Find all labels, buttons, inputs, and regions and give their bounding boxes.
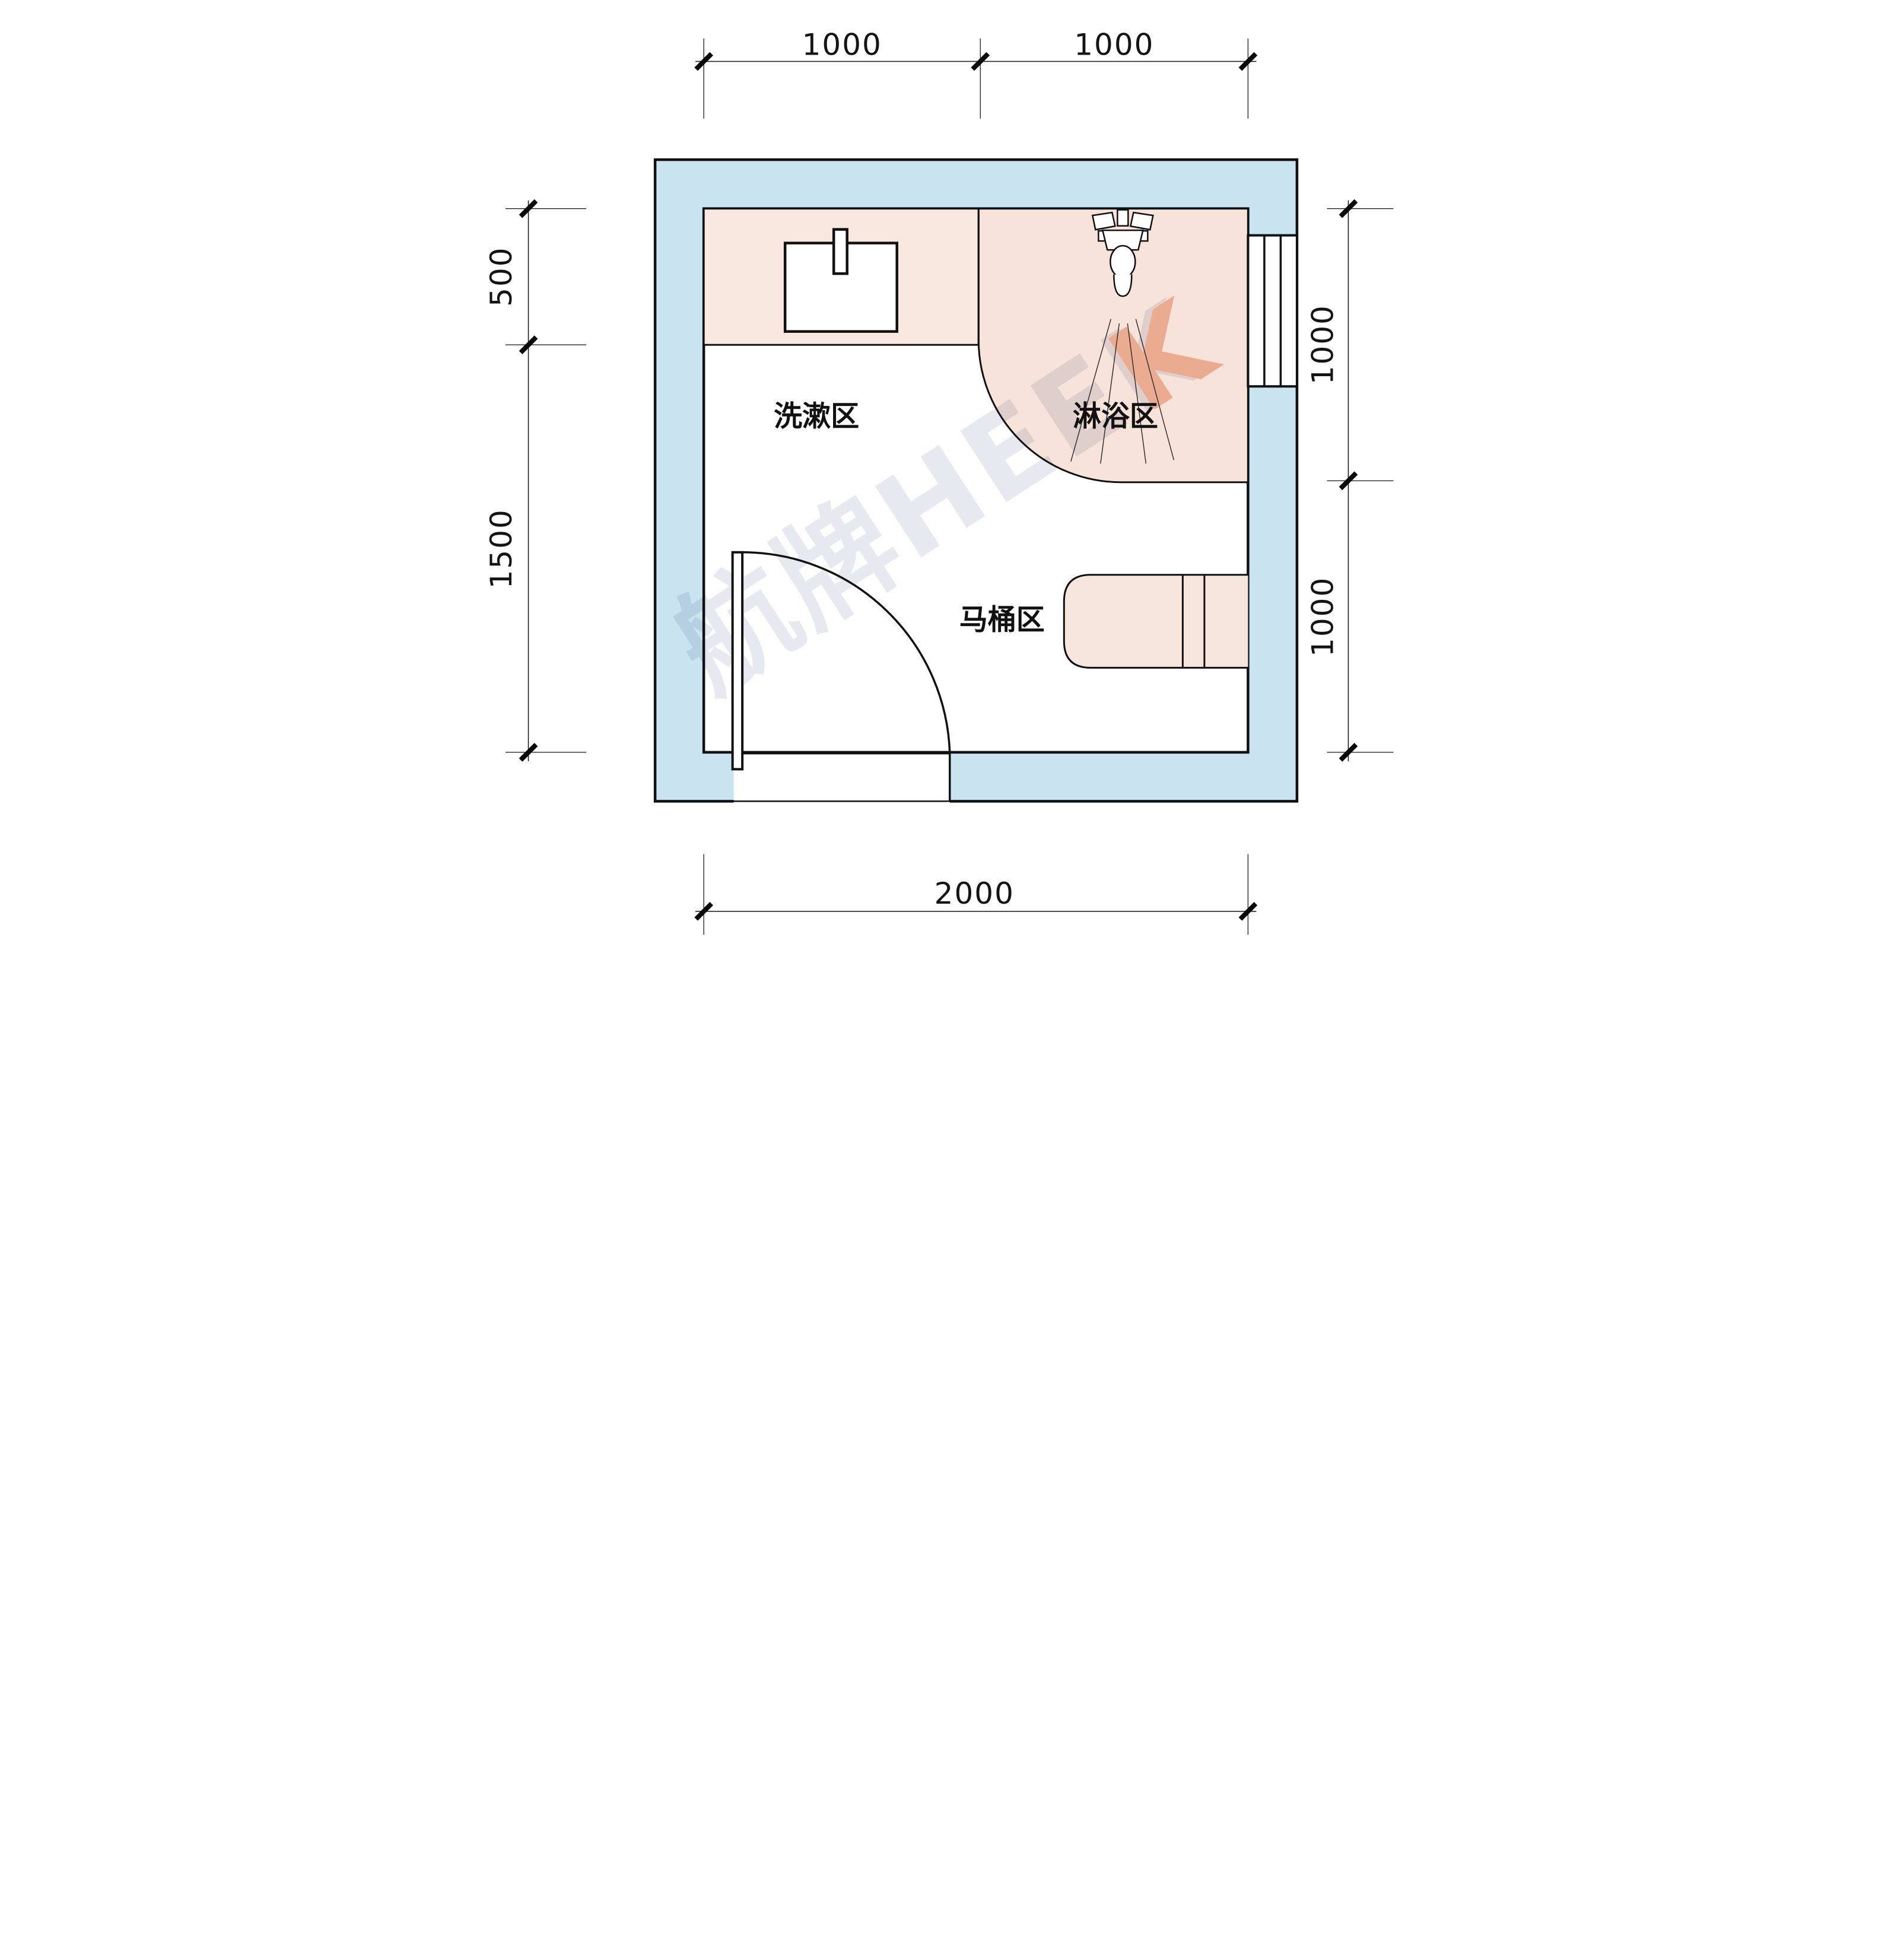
dim-text-top-1: 1000	[802, 28, 882, 62]
dim-text-right-1: 1000	[1305, 304, 1340, 384]
dim-text-left-2: 1500	[484, 509, 519, 589]
shower-mixer-right-handle	[1130, 212, 1153, 230]
label-toilet-area: 马桶区	[959, 603, 1045, 636]
label-washing-area: 洗漱区	[774, 400, 859, 433]
door-leaf	[733, 552, 743, 770]
toilet-zone-fill	[1064, 575, 1248, 668]
shower-mixer-stem	[1117, 210, 1128, 226]
dim-text-left-1: 500	[484, 246, 519, 306]
dim-text-right-2: 1000	[1305, 577, 1340, 657]
shower-mixer-spout	[1114, 275, 1131, 297]
dim-text-top-2: 1000	[1074, 28, 1154, 62]
door-opening-gap	[734, 754, 950, 803]
window	[1248, 236, 1297, 387]
sink-faucet	[834, 230, 847, 274]
floor-plan-stage: 航牌HEEK K 洗漱区 淋浴区 马桶区	[476, 0, 1428, 973]
dim-text-bottom-1: 2000	[934, 876, 1015, 911]
shower-mixer-left-handle	[1092, 212, 1115, 230]
shower-mixer-escutcheon	[1110, 246, 1135, 278]
label-shower-area: 淋浴区	[1073, 400, 1158, 433]
floor-plan-drawing: 航牌HEEK K 洗漱区 淋浴区 马桶区	[476, 0, 1428, 973]
